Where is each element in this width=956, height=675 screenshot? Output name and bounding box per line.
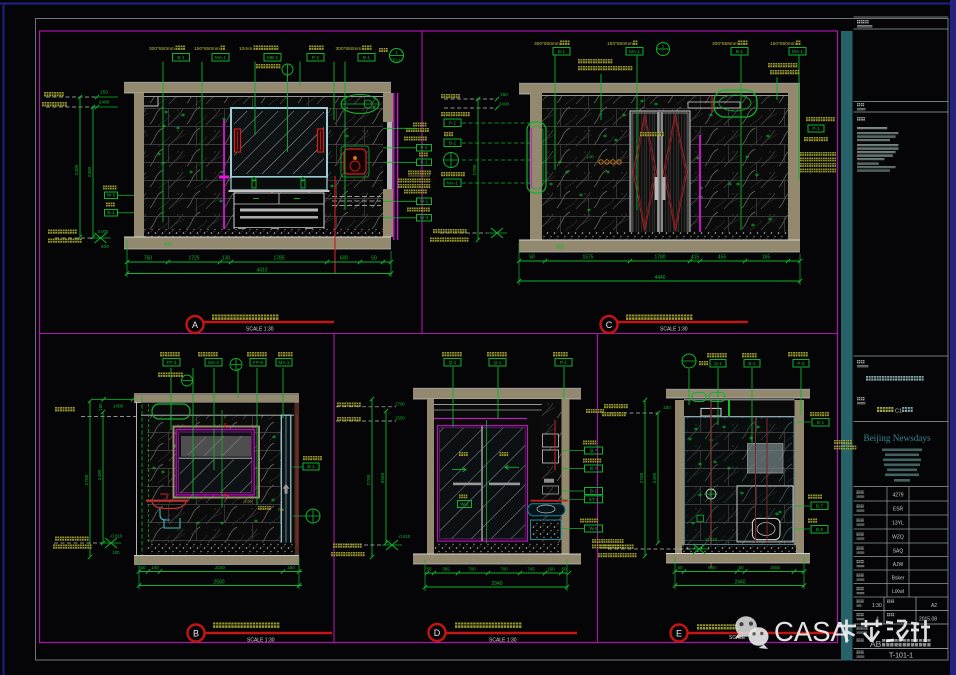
svg-text:ESR: ESR <box>893 507 904 513</box>
svg-text:150: 150 <box>98 403 103 411</box>
svg-text:B-1: B-1 <box>558 49 566 54</box>
svg-text:A2: A2 <box>931 603 937 609</box>
svg-text:700: 700 <box>468 567 476 572</box>
svg-text:AJW: AJW <box>893 562 904 568</box>
svg-text:150*550mm: 150*550mm <box>194 46 220 52</box>
svg-text:SCALE 1:30: SCALE 1:30 <box>246 327 274 333</box>
svg-text:W-1: W-1 <box>420 199 429 204</box>
svg-text:MA-1: MA-1 <box>215 55 226 60</box>
svg-text:1575: 1575 <box>582 255 593 261</box>
svg-text:W-5: W-5 <box>107 193 116 198</box>
svg-text:385: 385 <box>442 567 450 572</box>
svg-text:150*550mm: 150*550mm <box>770 41 796 47</box>
svg-text:C1: C1 <box>895 409 902 415</box>
svg-text:1400: 1400 <box>113 404 124 409</box>
svg-text:B-1: B-1 <box>107 210 115 215</box>
svg-text:SCALE 1:30: SCALE 1:30 <box>489 638 517 644</box>
svg-text:2550: 2550 <box>380 472 386 483</box>
svg-text:2700: 2700 <box>395 401 405 406</box>
svg-text:E: E <box>676 629 682 639</box>
svg-text:Q-1: Q-1 <box>714 361 722 366</box>
svg-text:Q-1: Q-1 <box>449 360 457 365</box>
svg-text:Beijing Newsdays: Beijing Newsdays <box>863 433 931 443</box>
svg-text:100: 100 <box>113 550 121 555</box>
svg-text:-0.010: -0.010 <box>705 537 718 542</box>
svg-text:165: 165 <box>762 255 771 261</box>
svg-text:2440: 2440 <box>734 580 745 586</box>
svg-text:MA-2: MA-2 <box>208 360 219 365</box>
svg-text:2400: 2400 <box>499 102 510 107</box>
svg-text:50: 50 <box>371 256 377 262</box>
svg-text:150: 150 <box>500 92 508 97</box>
svg-text:D: D <box>434 628 441 638</box>
svg-text:-0.010: -0.010 <box>398 534 411 539</box>
svg-text:50: 50 <box>140 565 146 570</box>
svg-text:2500: 2500 <box>213 580 224 586</box>
svg-text:B-1: B-1 <box>420 160 428 165</box>
svg-text:B-1: B-1 <box>590 489 598 494</box>
svg-text:2400: 2400 <box>97 469 103 480</box>
svg-text:MA-1: MA-1 <box>629 49 640 54</box>
svg-text:MB-1: MB-1 <box>267 55 278 60</box>
svg-text:P-1: P-1 <box>812 126 820 131</box>
svg-text:B-1: B-1 <box>177 55 185 60</box>
svg-text:MA-1: MA-1 <box>279 360 290 365</box>
svg-text:4440: 4440 <box>654 275 665 281</box>
svg-text:B-1: B-1 <box>748 361 756 366</box>
svg-text:2940: 2940 <box>491 581 502 587</box>
svg-text:B-7: B-7 <box>590 466 598 471</box>
svg-text:ST-1: ST-1 <box>589 497 599 502</box>
svg-text:150: 150 <box>663 405 671 410</box>
svg-text:1.50: 1.50 <box>586 154 595 159</box>
svg-text:50: 50 <box>529 255 535 261</box>
svg-text:P-1: P-1 <box>449 121 457 126</box>
svg-text:800: 800 <box>708 565 716 570</box>
svg-text:4410: 4410 <box>256 268 267 274</box>
svg-text:300*550mm: 300*550mm <box>336 46 362 52</box>
svg-text:2700: 2700 <box>366 474 372 485</box>
svg-text:FP-3: FP-3 <box>167 360 177 365</box>
svg-text:B-1: B-1 <box>307 464 315 469</box>
svg-text:600: 600 <box>340 256 349 262</box>
svg-text:150: 150 <box>100 90 108 96</box>
svg-text:2700: 2700 <box>84 474 90 485</box>
svg-text:1725: 1725 <box>188 256 199 262</box>
svg-text:455: 455 <box>718 255 727 261</box>
svg-text:100: 100 <box>151 565 159 570</box>
svg-text:0.000: 0.000 <box>98 229 109 234</box>
svg-text:B: B <box>193 629 199 639</box>
svg-text:2300: 2300 <box>87 166 93 177</box>
svg-text:700: 700 <box>500 567 508 572</box>
svg-text:600: 600 <box>164 242 172 248</box>
svg-text:1785: 1785 <box>273 256 284 262</box>
svg-text:T-101-1: T-101-1 <box>889 653 913 660</box>
svg-text:2015.08: 2015.08 <box>919 617 937 623</box>
svg-text:P-2: P-2 <box>420 145 428 150</box>
svg-text:1:30: 1:30 <box>872 603 882 609</box>
svg-text:1655: 1655 <box>770 565 781 570</box>
svg-text:B-5: B-5 <box>816 527 824 532</box>
svg-text:300*558mm: 300*558mm <box>712 41 738 47</box>
svg-text:4279: 4279 <box>892 493 903 499</box>
svg-text:MA-1: MA-1 <box>792 49 803 54</box>
svg-text:700: 700 <box>278 508 284 512</box>
svg-text:415: 415 <box>691 255 700 261</box>
svg-text:B-1: B-1 <box>736 49 744 54</box>
svg-text:P-1: P-1 <box>560 360 568 365</box>
svg-text:745: 745 <box>527 567 535 572</box>
svg-text:W-4: W-4 <box>420 215 429 220</box>
svg-text:SCALE 1:30: SCALE 1:30 <box>660 327 688 333</box>
svg-text:160: 160 <box>547 567 555 572</box>
svg-text:SCALE 1:30: SCALE 1:30 <box>247 638 275 644</box>
svg-text:A: A <box>192 320 198 330</box>
svg-text:2400: 2400 <box>652 472 658 483</box>
svg-text:50: 50 <box>562 567 567 572</box>
svg-text:50: 50 <box>738 565 744 570</box>
svg-text:P-2: P-2 <box>312 55 320 60</box>
svg-text:SAQ: SAQ <box>893 549 904 555</box>
svg-text:1780: 1780 <box>654 255 665 261</box>
svg-text:FP-9: FP-9 <box>253 360 263 365</box>
svg-text:Q-1: Q-1 <box>494 360 502 365</box>
svg-text:B-1: B-1 <box>363 55 371 60</box>
svg-text:13YL: 13YL <box>892 521 904 527</box>
svg-text:600: 600 <box>101 244 109 250</box>
svg-text:P1-2: P1-2 <box>393 58 401 62</box>
svg-text:10mm: 10mm <box>239 46 252 52</box>
svg-text:2550: 2550 <box>395 416 405 421</box>
svg-text:WZQ: WZQ <box>892 535 904 541</box>
svg-text:2700: 2700 <box>639 472 645 483</box>
svg-text:-0.010: -0.010 <box>110 534 123 539</box>
svg-text:300*550mm: 300*550mm <box>534 41 560 47</box>
svg-text:MA-1: MA-1 <box>447 181 458 186</box>
svg-text:Q-7: Q-7 <box>590 448 598 453</box>
svg-text:50: 50 <box>427 567 432 572</box>
svg-text:2200: 2200 <box>215 565 226 570</box>
svg-text:150: 150 <box>287 565 295 570</box>
svg-text:P-2: P-2 <box>797 361 805 366</box>
svg-text:LiXwl: LiXwl <box>892 589 904 595</box>
svg-text:W-5: W-5 <box>589 526 598 531</box>
svg-text:Bsker: Bsker <box>892 576 905 582</box>
svg-text:150*550mm: 150*550mm <box>607 41 633 47</box>
svg-text:2400: 2400 <box>74 164 80 175</box>
svg-text:750: 750 <box>144 256 153 262</box>
svg-text:CASA: CASA <box>774 616 850 647</box>
svg-text:2700: 2700 <box>472 164 478 175</box>
svg-text:600: 600 <box>556 245 565 251</box>
svg-text:C: C <box>606 320 613 330</box>
svg-text:W-1: W-1 <box>460 502 469 507</box>
svg-text:300*550mm: 300*550mm <box>149 46 175 52</box>
svg-text:B-7: B-7 <box>816 504 824 509</box>
svg-text:B-1: B-1 <box>449 141 457 146</box>
svg-text:1.50: 1.50 <box>244 499 253 504</box>
svg-text:50: 50 <box>677 565 683 570</box>
svg-text:2400: 2400 <box>99 100 110 106</box>
svg-text:2: 2 <box>286 66 288 70</box>
svg-text:130: 130 <box>222 256 231 262</box>
svg-text:B-1: B-1 <box>817 420 825 425</box>
